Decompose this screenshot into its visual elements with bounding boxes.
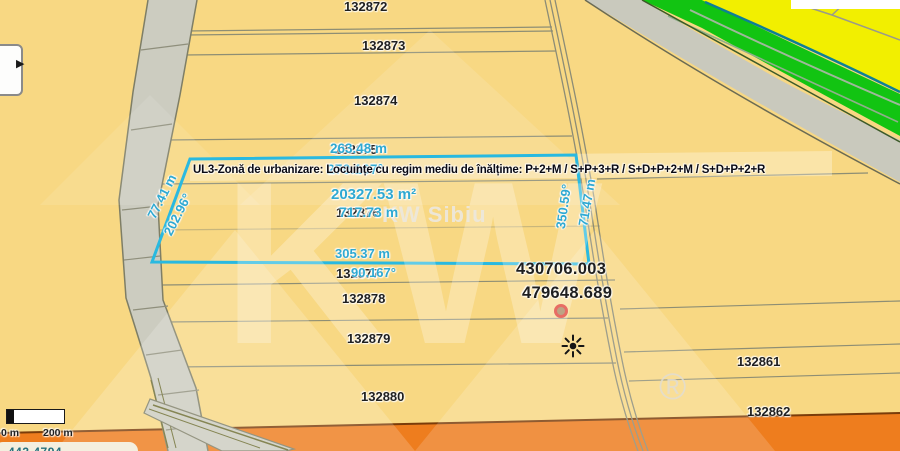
coordinate-x: 430706.003 — [516, 260, 606, 279]
parcel-label: 132874 — [354, 93, 397, 108]
sun-icon — [563, 336, 584, 357]
status-readout: 443.4794 — [0, 442, 138, 451]
parcel-label: 132862 — [747, 404, 790, 419]
parcel-label: 132872 — [344, 0, 387, 14]
measure-bottom-bearing: 90.167° — [351, 265, 396, 280]
parcel-label: 132879 — [347, 331, 390, 346]
parcel-label: 132873 — [362, 38, 405, 53]
scale-bar-segment — [7, 410, 14, 423]
measure-area: 20327.53 m² — [331, 186, 416, 203]
scale-start-label: 0 m — [1, 427, 19, 439]
scale-bar — [6, 409, 65, 424]
side-panel-toggle[interactable] — [0, 44, 23, 96]
measure-bottom-length: 305.37 m — [335, 246, 390, 261]
top-right-white-box — [791, 0, 900, 9]
measure-perimeter: 717.73 m — [339, 204, 398, 220]
map-canvas[interactable]: KW ® KW Sibiu 132872 132873 132874 13287… — [0, 0, 900, 451]
measure-top-length: 263.48 m — [330, 141, 387, 156]
parcel-label: 132878 — [342, 291, 385, 306]
scale-end-label: 200 m — [43, 427, 73, 439]
coordinate-y: 479648.689 — [522, 284, 612, 303]
parcel-label: 132880 — [361, 389, 404, 404]
parcel-label: 132861 — [737, 354, 780, 369]
zone-banner: UL3-Zonă de urbanizare: Locuințe cu regi… — [193, 164, 765, 176]
registered-mark-icon: ® — [659, 366, 686, 408]
expand-arrow-icon[interactable]: ▶ — [16, 57, 24, 70]
point-marker[interactable] — [556, 306, 567, 317]
